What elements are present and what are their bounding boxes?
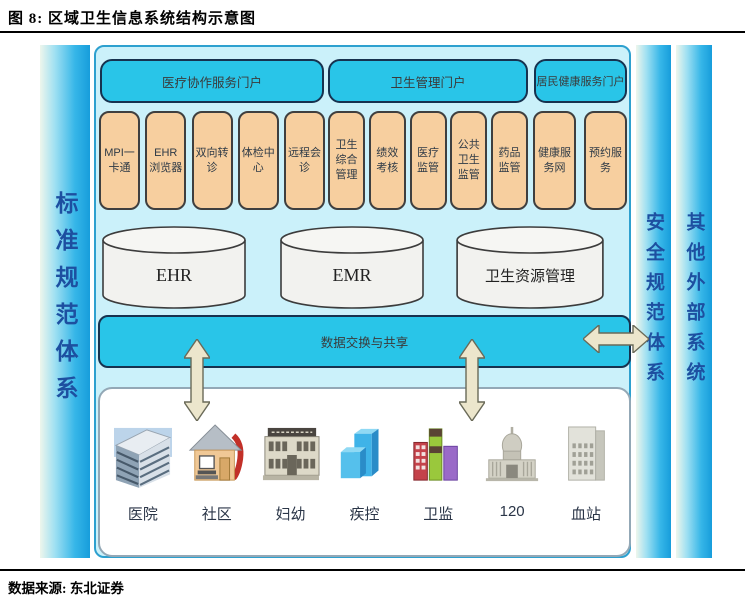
module-appointment: 预约服务: [584, 111, 627, 210]
emr-database-cylinder: EMR: [277, 223, 427, 313]
footer-divider: [0, 569, 745, 571]
data-exchange-bar: 数据交换与共享: [98, 315, 631, 368]
module-health-admin: 卫生综合管理: [328, 111, 365, 210]
figure-title: 图 8: 区域卫生信息系统结构示意图: [8, 7, 256, 28]
standards-system-bar: 标准规范体系: [40, 45, 90, 558]
module-performance: 绩效考核: [369, 111, 406, 210]
module-remote-consult: 远程会诊: [284, 111, 325, 210]
module-public-health-supervision: 公共卫生监管: [450, 111, 487, 210]
health-resource-database-cylinder: 卫生资源管理: [453, 223, 607, 313]
ehr-database-label: EHR: [99, 265, 249, 286]
module-mpi-card: MPI一卡通: [99, 111, 140, 210]
module-exam-center: 体检中心: [238, 111, 279, 210]
institution-label: 血站: [571, 503, 601, 524]
institution-120: 120: [480, 411, 544, 520]
module-health-service-net: 健康服务网: [533, 111, 576, 210]
blood-station-building-icon: [557, 411, 615, 499]
horizontal-double-arrow-icon: [583, 325, 649, 353]
emergency-120-building-icon: [483, 411, 541, 499]
community-house-icon: [188, 411, 246, 499]
institution-hospital: 医院: [111, 411, 175, 524]
health-resource-database-label: 卫生资源管理: [453, 265, 607, 286]
module-group-resident: 健康服务网 预约服务: [533, 111, 627, 210]
vertical-double-arrow-icon: [459, 339, 485, 421]
security-system-bar: 安全规范体系: [636, 45, 671, 558]
institution-label: 卫监: [423, 503, 453, 524]
institutions-panel: 医院 社区: [98, 387, 631, 557]
institution-community: 社区: [185, 411, 249, 524]
institution-blood-station: 血站: [554, 411, 618, 524]
platform-panel: 医疗协作服务门户 卫生管理门户 居民健康服务门户 MPI一卡通 EHR浏览器 双…: [94, 45, 631, 558]
institution-health-supervision: 卫监: [406, 411, 470, 524]
module-ehr-browser: EHR浏览器: [145, 111, 186, 210]
report-figure-page: 图 8: 区域卫生信息系统结构示意图 标准规范体系 安全规范体系 其他外部系统 …: [0, 0, 745, 605]
system-structure-diagram: 标准规范体系 安全规范体系 其他外部系统 医疗协作服务门户 卫生管理门户 居民健…: [40, 45, 712, 558]
module-drug-supervision: 药品监管: [491, 111, 528, 210]
institution-cdc: 疾控: [332, 411, 396, 524]
portal-medical-collaboration: 医疗协作服务门户: [100, 59, 324, 103]
cdc-building-icon: [335, 411, 393, 499]
title-divider: [0, 31, 745, 33]
institution-label: 医院: [128, 503, 158, 524]
hospital-building-icon: [114, 411, 172, 499]
institution-label: 妇幼: [276, 503, 306, 524]
module-group-collaboration: MPI一卡通 EHR浏览器 双向转诊 体检中心 远程会诊: [99, 111, 325, 210]
maternal-child-building-icon: [262, 411, 320, 499]
health-supervision-building-icon: [409, 411, 467, 499]
emr-database-label: EMR: [277, 265, 427, 286]
external-systems-bar: 其他外部系统: [676, 45, 712, 558]
module-two-way-referral: 双向转诊: [192, 111, 233, 210]
institution-label: 社区: [202, 503, 232, 524]
vertical-double-arrow-icon: [184, 339, 210, 421]
module-medical-supervision: 医疗监管: [410, 111, 447, 210]
institution-label: 120: [500, 503, 525, 520]
portal-health-management: 卫生管理门户: [328, 59, 528, 103]
institution-maternal-child: 妇幼: [259, 411, 323, 524]
ehr-database-cylinder: EHR: [99, 223, 249, 313]
external-systems-label: 其他外部系统: [681, 212, 708, 392]
institution-label: 疾控: [349, 503, 379, 524]
standards-system-label: 标准规范体系: [48, 191, 82, 413]
data-source: 数据来源: 东北证券: [8, 577, 124, 597]
security-system-label: 安全规范体系: [640, 212, 667, 392]
portal-resident-health: 居民健康服务门户: [534, 59, 627, 103]
module-group-management: 卫生综合管理 绩效考核 医疗监管 公共卫生监管 药品监管: [328, 111, 528, 210]
